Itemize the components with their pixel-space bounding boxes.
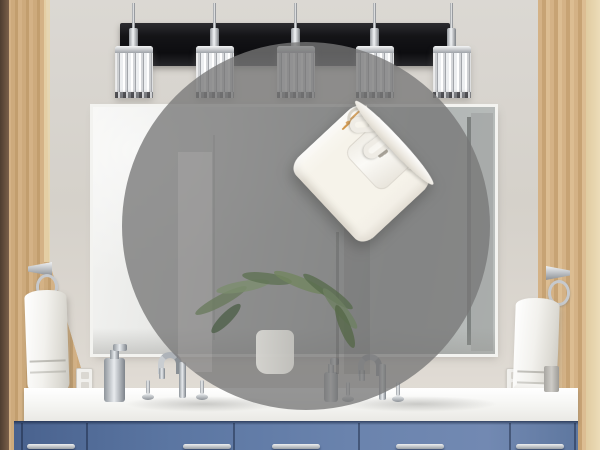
tumbler-cup xyxy=(544,366,559,392)
vanity-cabinet xyxy=(14,421,578,450)
drawer-pull xyxy=(27,444,75,449)
drawer-pull xyxy=(272,444,320,449)
drawer-pull xyxy=(183,444,231,449)
drawer-seam xyxy=(509,423,511,450)
drawer-seam xyxy=(358,423,360,450)
drawer-pull xyxy=(516,444,564,449)
drawer-seam xyxy=(574,423,576,450)
towel-left xyxy=(24,289,70,396)
drawer-seam xyxy=(21,423,23,450)
drawer-pull xyxy=(396,444,444,449)
drawer-seam xyxy=(86,423,88,450)
drawer-seam xyxy=(233,423,235,450)
counter-shadow xyxy=(14,421,578,425)
product-zoom-overlay xyxy=(122,42,490,410)
bathroom-product-scene xyxy=(0,0,600,450)
